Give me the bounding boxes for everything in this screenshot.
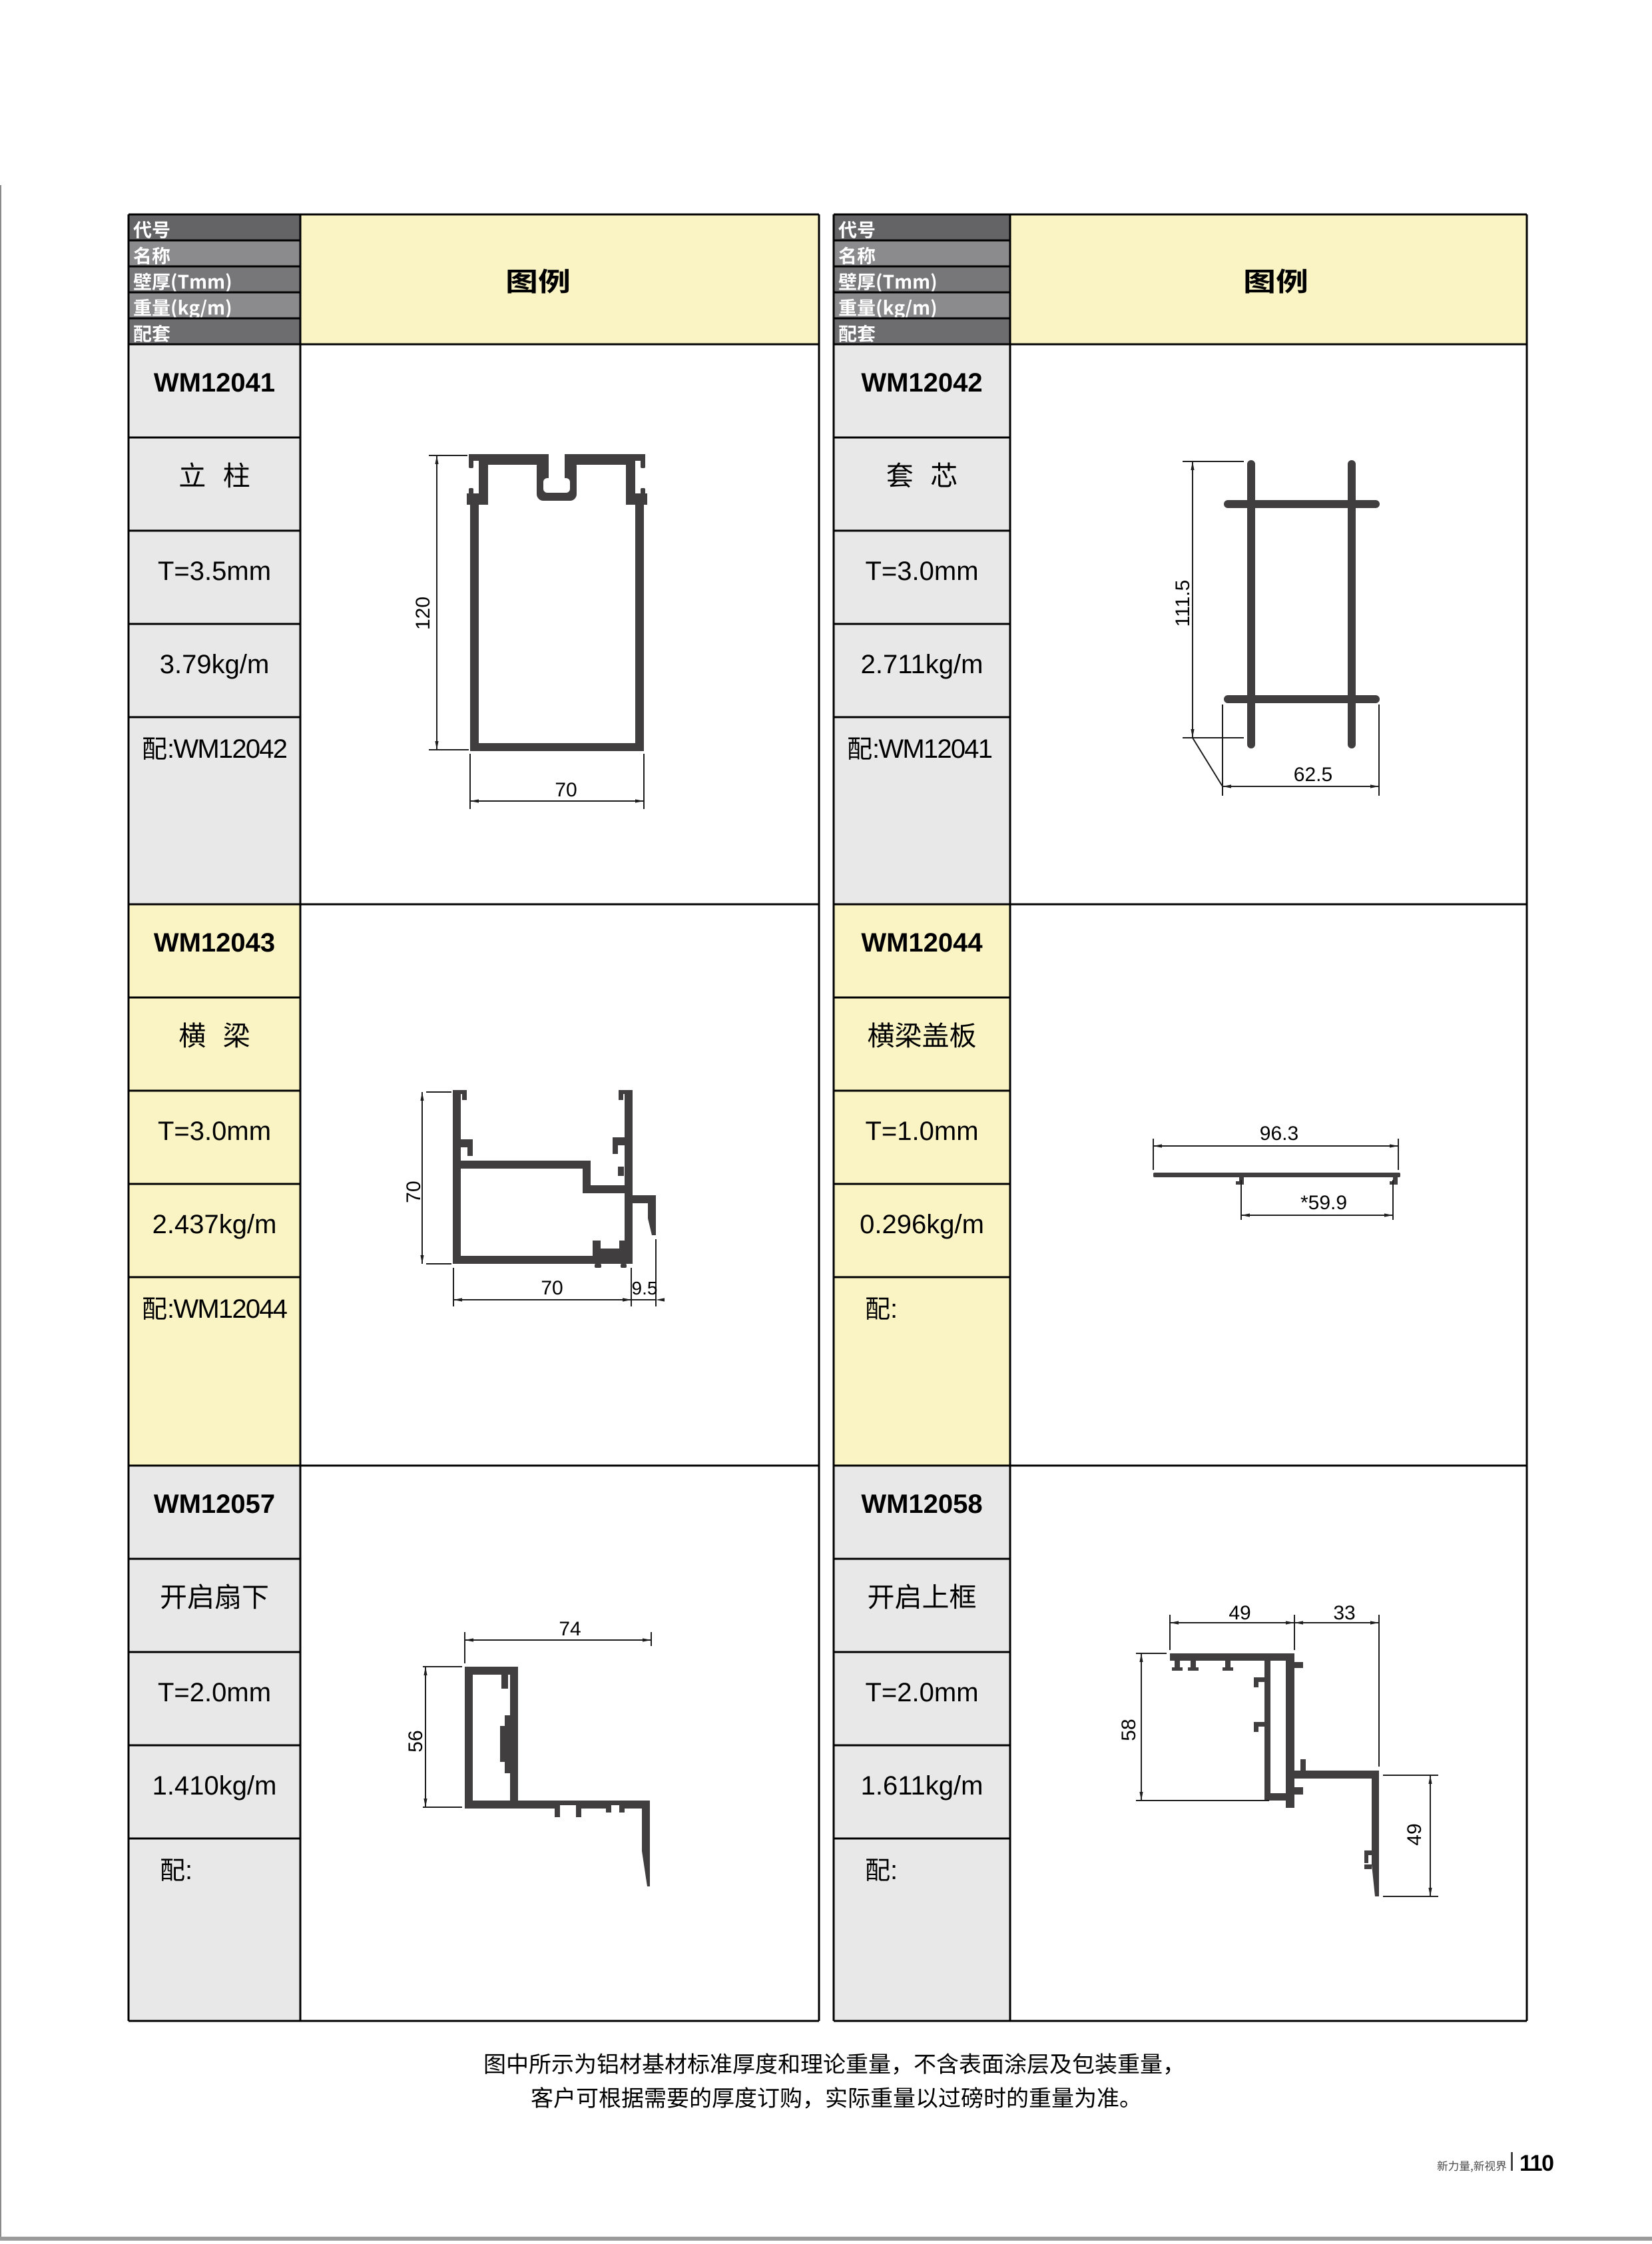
- svg-text:WM12042: WM12042: [861, 368, 982, 398]
- svg-text::WM12044: :WM12044: [167, 1294, 288, 1324]
- svg-text:0.296kg/m: 0.296kg/m: [860, 1210, 984, 1239]
- svg-text:WM12044: WM12044: [861, 928, 983, 958]
- svg-text:T=3.0mm: T=3.0mm: [158, 1117, 271, 1146]
- svg-text:9.5: 9.5: [632, 1278, 658, 1298]
- svg-text:70: 70: [541, 1277, 563, 1299]
- svg-text:T=3.0mm: T=3.0mm: [865, 557, 978, 586]
- svg-text:3.79kg/m: 3.79kg/m: [160, 650, 270, 679]
- svg-text:WM12041: WM12041: [154, 368, 275, 398]
- svg-text:110: 110: [1519, 2151, 1554, 2176]
- svg-text:120: 120: [412, 597, 434, 630]
- svg-text:70: 70: [403, 1181, 425, 1203]
- svg-text:33: 33: [1333, 1602, 1355, 1624]
- svg-text:1.410kg/m: 1.410kg/m: [152, 1771, 277, 1801]
- svg-text:49: 49: [1229, 1602, 1250, 1624]
- svg-text:1.611kg/m: 1.611kg/m: [861, 1771, 983, 1801]
- svg-text:*59.9: *59.9: [1300, 1192, 1347, 1214]
- svg-text:WM12058: WM12058: [861, 1490, 982, 1519]
- svg-text:58: 58: [1118, 1719, 1140, 1741]
- svg-text:96.3: 96.3: [1260, 1123, 1298, 1145]
- svg-text:T=3.5mm: T=3.5mm: [158, 557, 271, 586]
- svg-text:111.5: 111.5: [1172, 580, 1194, 627]
- svg-text:62.5: 62.5: [1294, 764, 1332, 786]
- svg-text:T=2.0mm: T=2.0mm: [865, 1678, 978, 1707]
- svg-text::WM12041: :WM12041: [872, 734, 993, 764]
- svg-text:T=1.0mm: T=1.0mm: [865, 1117, 978, 1146]
- svg-text:49: 49: [1404, 1823, 1426, 1845]
- svg-text::: :: [890, 1294, 898, 1324]
- svg-text:2.711kg/m: 2.711kg/m: [861, 650, 983, 679]
- svg-text:74: 74: [559, 1618, 581, 1640]
- svg-text:70: 70: [555, 779, 577, 801]
- svg-text:56: 56: [405, 1730, 427, 1752]
- svg-text:2.437kg/m: 2.437kg/m: [152, 1210, 277, 1239]
- svg-text:WM12043: WM12043: [154, 928, 275, 958]
- svg-text::: :: [890, 1856, 898, 1885]
- svg-text:WM12057: WM12057: [154, 1490, 275, 1519]
- svg-text::WM12042: :WM12042: [167, 734, 288, 764]
- svg-text::: :: [185, 1856, 192, 1885]
- svg-text:T=2.0mm: T=2.0mm: [158, 1678, 271, 1707]
